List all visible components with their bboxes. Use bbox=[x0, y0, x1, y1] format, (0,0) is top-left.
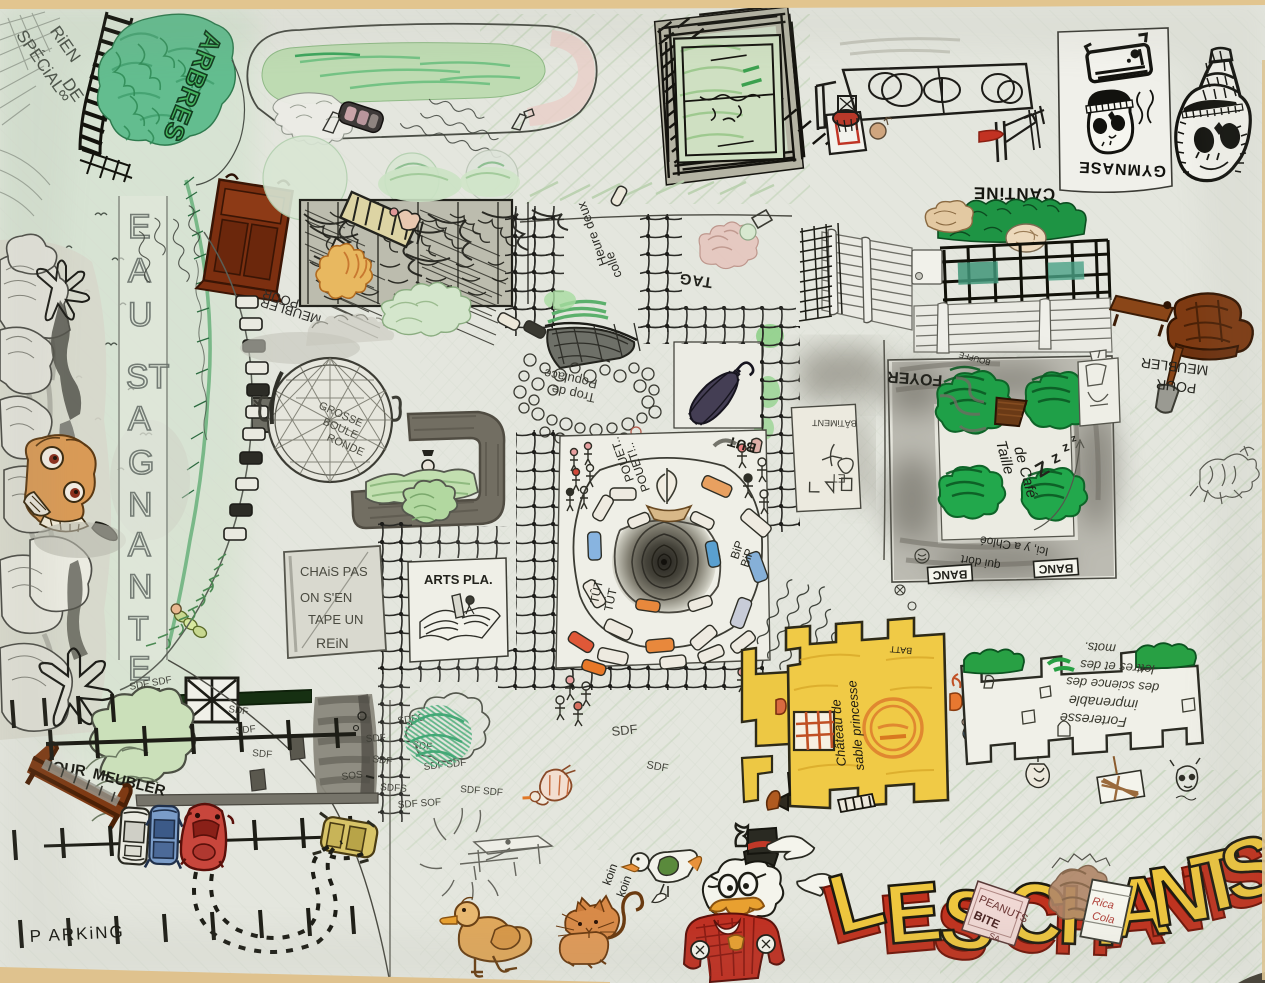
svg-text:BANC: BANC bbox=[932, 567, 967, 582]
svg-text:ON S'EN: ON S'EN bbox=[300, 590, 352, 605]
svg-text:TAPE UN: TAPE UN bbox=[308, 612, 363, 627]
svg-text:A: A bbox=[128, 252, 151, 290]
svg-text:BANC: BANC bbox=[1038, 561, 1073, 576]
svg-text:SDF: SDF bbox=[252, 748, 273, 761]
svg-text:ST: ST bbox=[126, 358, 169, 396]
svg-text:SDF: SDF bbox=[611, 721, 638, 739]
svg-text:G: G bbox=[128, 444, 154, 482]
svg-text:U: U bbox=[128, 296, 153, 334]
svg-text:A: A bbox=[128, 400, 151, 438]
svg-text:SDFS: SDFS bbox=[380, 782, 408, 795]
svg-text:N: N bbox=[128, 486, 153, 524]
svg-text:ET: ET bbox=[830, 471, 846, 485]
svg-text:E: E bbox=[128, 208, 151, 246]
svg-text:A: A bbox=[128, 526, 151, 564]
svg-text:REiN: REiN bbox=[316, 635, 349, 651]
svg-text:mots.: mots. bbox=[1084, 639, 1117, 656]
svg-text:BATT: BATT bbox=[889, 644, 913, 656]
svg-text:ARTS PLA.: ARTS PLA. bbox=[424, 572, 493, 587]
svg-text:SDF: SDF bbox=[365, 733, 386, 745]
svg-text:CHAiS PAS: CHAiS PAS bbox=[300, 564, 368, 579]
svg-text:BÂTiMENT: BÂTiMENT bbox=[811, 418, 856, 429]
svg-text:N: N bbox=[128, 568, 153, 606]
svg-text:T: T bbox=[128, 610, 149, 648]
